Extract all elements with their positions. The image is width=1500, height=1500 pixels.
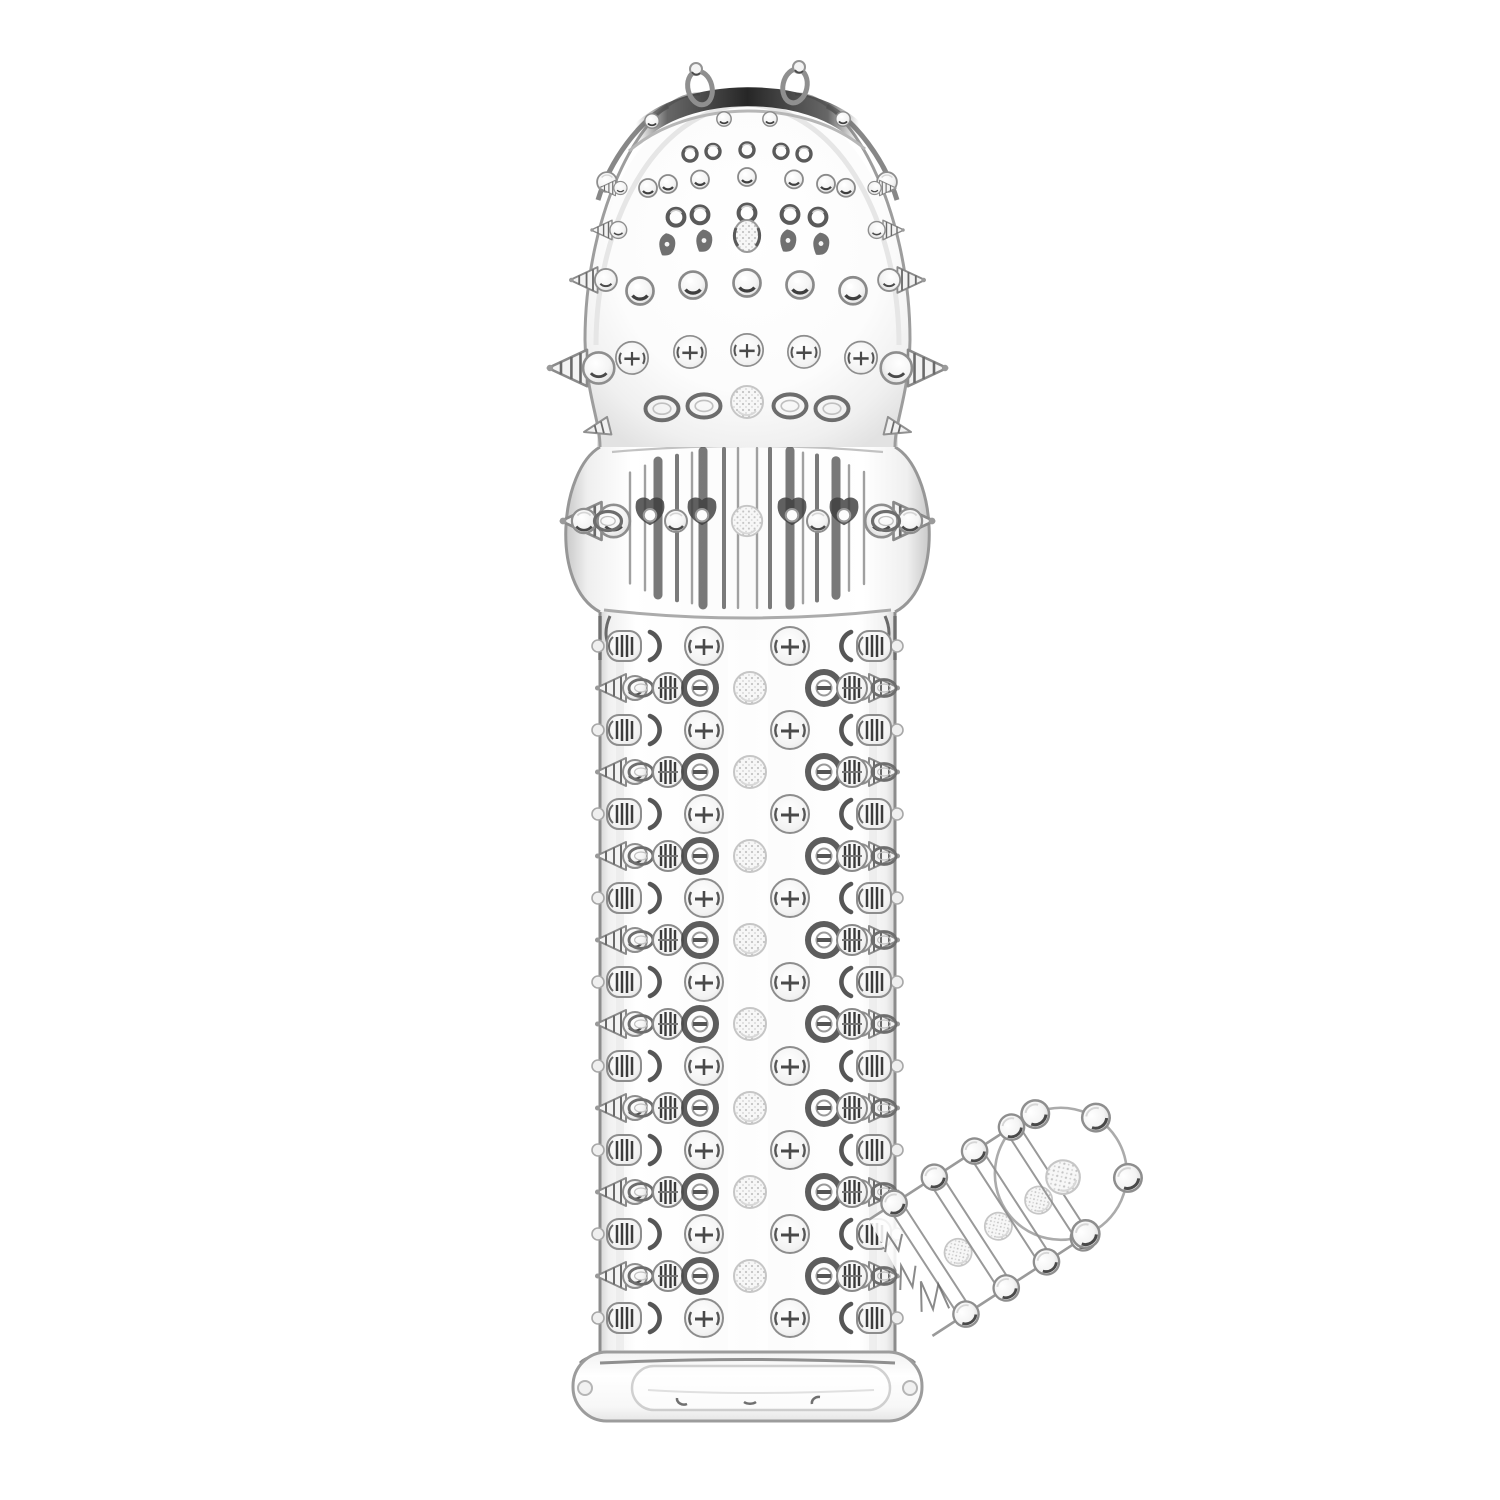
sleeve-base [573,1352,922,1421]
base-opening [632,1366,890,1410]
product-image [0,0,1500,1500]
product-photo-stage [0,0,1500,1500]
sleeve-ribbed-section [560,446,936,618]
sleeve-shaft [580,608,915,1363]
sleeve-head [547,61,949,447]
